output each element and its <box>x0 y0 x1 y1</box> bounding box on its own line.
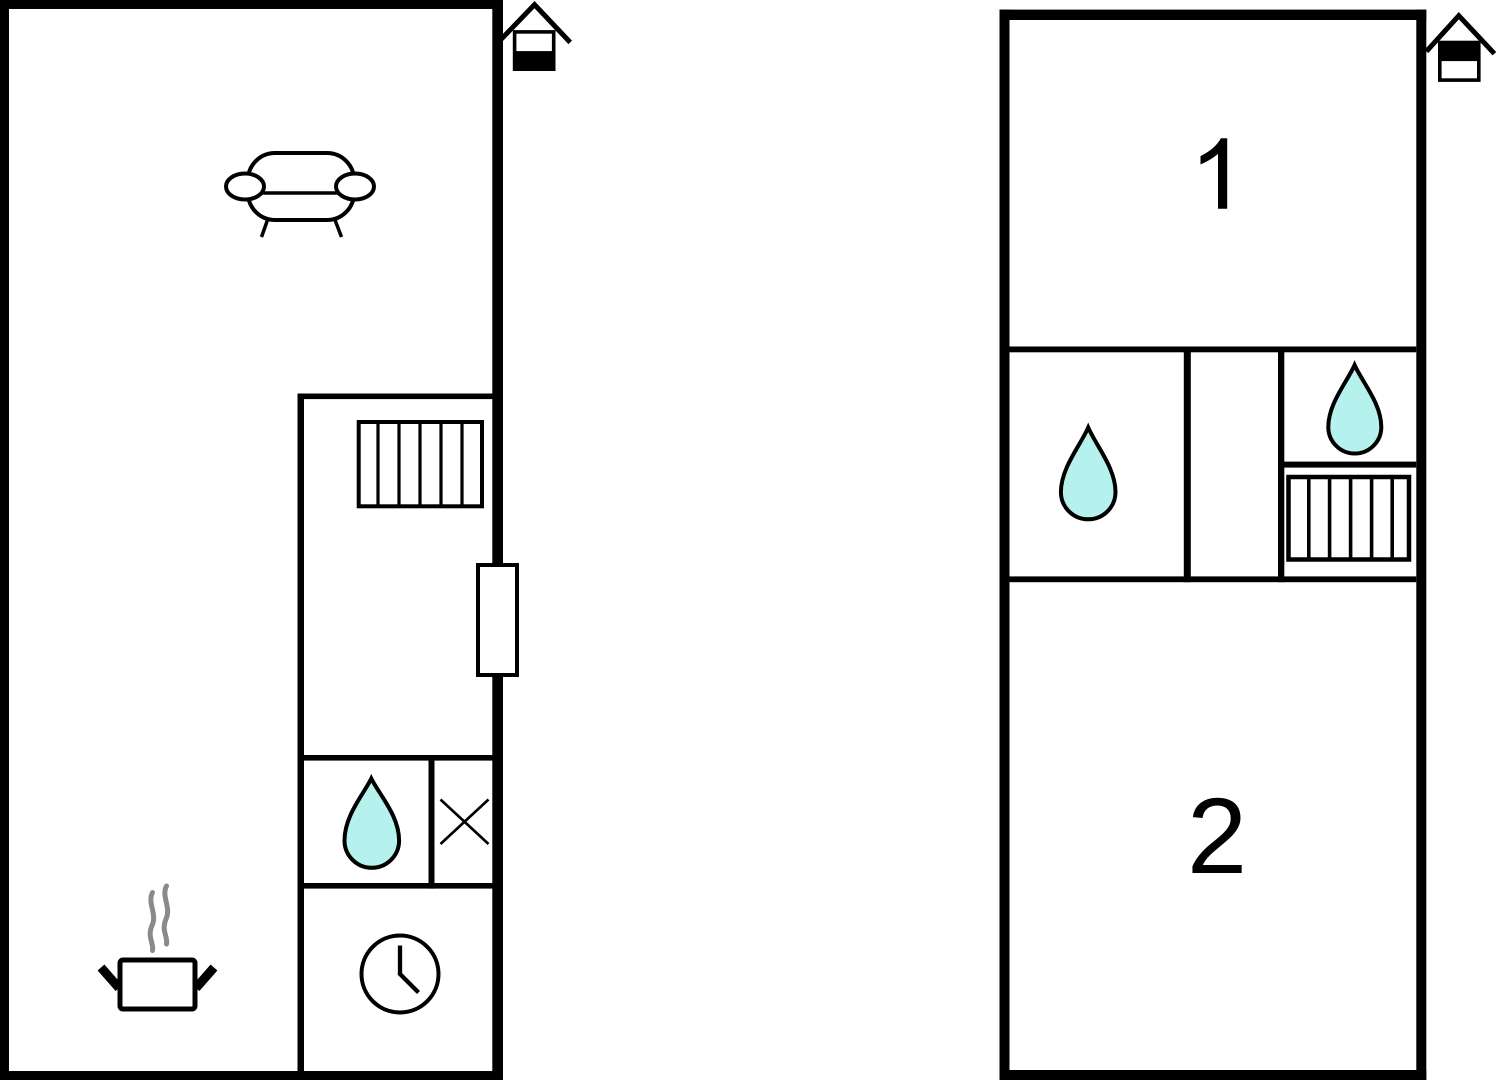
svg-text:2: 2 <box>1187 775 1247 896</box>
